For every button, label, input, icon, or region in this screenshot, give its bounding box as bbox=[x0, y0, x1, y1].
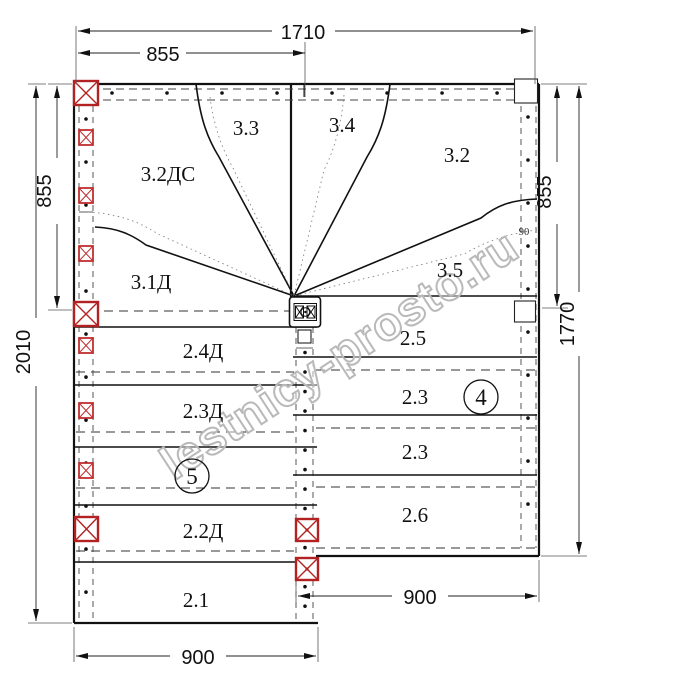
tread-label-2-5: 2.5 bbox=[400, 326, 426, 350]
right-stringer bbox=[521, 106, 536, 548]
tread-label-2-3d: 2.3Д bbox=[183, 399, 224, 423]
svg-text:2010: 2010 bbox=[13, 330, 35, 375]
svg-text:855: 855 bbox=[146, 44, 179, 66]
svg-text:900: 900 bbox=[181, 647, 214, 669]
winder-label-3-2: 3.2 bbox=[444, 143, 470, 167]
winder-label-3-3: 3.3 bbox=[233, 116, 259, 140]
top-landing-band bbox=[77, 84, 537, 100]
baluster-icon bbox=[79, 130, 93, 145]
svg-text:4: 4 bbox=[475, 385, 487, 410]
right-flight-labels: 2.5 2.3 2.3 2.6 bbox=[400, 326, 428, 527]
dimension-top-total: 1710 bbox=[76, 22, 535, 84]
dimension-bottom-right: 900 bbox=[296, 560, 539, 609]
winder-tread-labels: 3.2ДС 3.3 3.4 3.2 3.1Д 3.5 bbox=[131, 113, 470, 294]
tread-label-2-3b: 2.3 bbox=[402, 440, 428, 464]
tread-label-2-3a: 2.3 bbox=[402, 385, 428, 409]
dimension-bottom-left: 900 bbox=[74, 627, 318, 669]
post-icon bbox=[296, 519, 318, 541]
tread-label-2-2d: 2.2Д bbox=[183, 519, 224, 543]
baluster-icon bbox=[79, 338, 93, 353]
winder-label-3-2ds: 3.2ДС bbox=[141, 162, 196, 186]
baluster-icon bbox=[79, 188, 93, 203]
winder-label-3-1d: 3.1Д bbox=[131, 270, 172, 294]
svg-text:5: 5 bbox=[186, 464, 198, 489]
dimension-right-total: 1770 bbox=[541, 86, 587, 556]
winder-label-3-5: 3.5 bbox=[437, 258, 463, 282]
baluster-icon bbox=[79, 246, 93, 261]
svg-text:1710: 1710 bbox=[281, 22, 326, 44]
tread-label-2-1: 2.1 bbox=[183, 588, 209, 612]
staircase-plan-drawing: lestnicy-prosto.ru 1710 855 855 2010 bbox=[0, 0, 690, 694]
dimension-left-upper: 855 bbox=[34, 84, 72, 310]
post-icon bbox=[75, 517, 98, 541]
baluster-icon bbox=[79, 403, 93, 418]
winder-label-3-4: 3.4 bbox=[329, 113, 356, 137]
svg-text:855: 855 bbox=[534, 175, 556, 208]
dimension-stringer-width: 90 bbox=[519, 227, 530, 238]
tread-label-2-4d: 2.4Д bbox=[183, 339, 224, 363]
svg-text:855: 855 bbox=[34, 174, 56, 207]
svg-text:900: 900 bbox=[403, 587, 436, 609]
dimension-left-total: 2010 bbox=[13, 84, 72, 623]
post-icon bbox=[296, 558, 318, 580]
dimension-top-half: 855 bbox=[78, 42, 305, 97]
drawing-canvas: lestnicy-prosto.ru 1710 855 855 2010 bbox=[0, 0, 690, 694]
post-icon bbox=[74, 81, 98, 105]
flight-balloon-4: 4 bbox=[464, 380, 498, 414]
newel-post-symbol bbox=[290, 297, 321, 327]
post-icon bbox=[74, 302, 98, 326]
tread-label-2-6: 2.6 bbox=[402, 503, 428, 527]
baluster-icon bbox=[79, 463, 93, 478]
svg-text:1770: 1770 bbox=[557, 302, 579, 347]
